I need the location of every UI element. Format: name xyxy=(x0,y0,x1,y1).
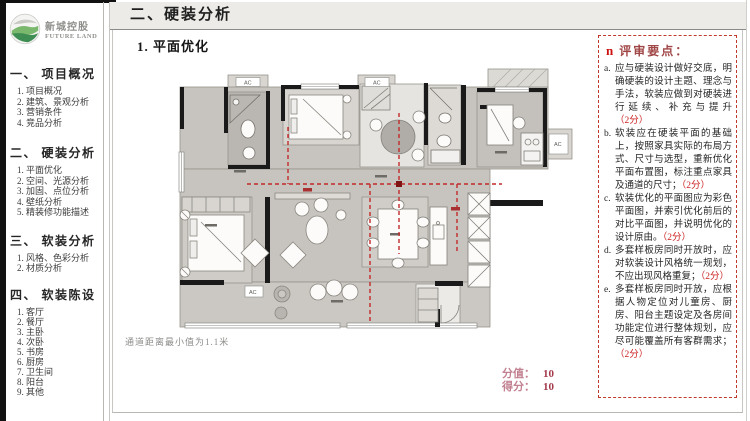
review-panel-header: n评审要点： xyxy=(606,42,732,60)
nav-item-balcony[interactable]: 8. 阳台 xyxy=(17,377,104,387)
nav-item-second-bedroom[interactable]: 4. 次卧 xyxy=(17,337,104,347)
brand-name-cn: 新城控股 xyxy=(45,18,97,33)
nav-item-marketing-conditions[interactable]: 3. 营销条件 xyxy=(17,107,104,118)
brand-name-en: FUTURE LAND xyxy=(45,33,97,40)
nav-item-living-room[interactable]: 1. 客厅 xyxy=(17,307,104,317)
review-item-text: 应与硬装设计做好交底，明 确硬装的设计主题、理念与 手法，软装应做到对硬装进 行… xyxy=(615,64,732,113)
nav-item-project-overview[interactable]: 1. 项目概况 xyxy=(17,86,104,97)
review-item-score: （2分） xyxy=(663,233,692,243)
review-item-label: b. xyxy=(604,128,615,193)
review-item-text: 软装应在硬装平面的基础上，按照家具实际的布局方式、尺寸与选型，重新优化平面布置图… xyxy=(615,129,732,191)
nav-item-study[interactable]: 5. 书房 xyxy=(17,347,104,357)
nav-item-material[interactable]: 2. 材质分析 xyxy=(17,263,104,274)
review-item-label: c. xyxy=(604,193,615,245)
globe-logo-icon xyxy=(9,13,41,45)
sidebar-divider-inner xyxy=(109,2,110,421)
nav-item-space-light[interactable]: 2. 空间、光源分析 xyxy=(17,176,104,187)
review-panel: n评审要点： a. 应与硬装设计做好交底，明 确硬装的设计主题、理念与 手法，软… xyxy=(598,35,737,398)
window-right-border xyxy=(746,0,747,421)
review-item-a: a. 应与硬装设计做好交底，明 确硬装的设计主题、理念与 手法，软装应做到对硬装… xyxy=(604,63,732,128)
title-bar: 二、硬装分析 xyxy=(110,2,746,30)
review-item-score: （2分） xyxy=(615,350,648,360)
nav-section-hard-decoration[interactable]: 二、 硬装分析 xyxy=(10,144,104,161)
review-item-score: （2分） xyxy=(682,181,711,191)
sidebar-nav: 一、 项目概况 1. 项目概况 2. 建筑、景观分析 3. 营销条件 4. 竞品… xyxy=(10,65,104,397)
section-title: 1. 平面优化 xyxy=(137,36,209,55)
nav-item-plan-optimization[interactable]: 1. 平面优化 xyxy=(17,165,104,176)
ac-label-3: AC xyxy=(554,142,562,148)
brand-logo: 新城控股 FUTURE LAND xyxy=(9,13,97,45)
got-label: 得分： xyxy=(502,381,535,393)
nav-item-competitor-analysis[interactable]: 4. 竞品分析 xyxy=(17,118,104,129)
nav-item-kitchen[interactable]: 6. 厨房 xyxy=(17,357,104,367)
sidebar-divider-outer xyxy=(103,2,104,421)
nav-item-bathroom[interactable]: 7. 卫生间 xyxy=(17,367,104,377)
review-item-d: d. 多套样板房同时开放时，应对软装设计风格统一规划，不应出现风格重复；（2分） xyxy=(604,245,732,284)
floor-plan: AC AC AC AC xyxy=(135,57,590,335)
review-item-text: 多套样板房同时开放，应根据人物定位对儿童房、厨房、阳台主题设定及各房间功能定位进… xyxy=(615,285,732,347)
score-label: 分值： xyxy=(502,368,535,380)
review-item-score: （2分） xyxy=(701,272,730,282)
nav-item-master-bedroom[interactable]: 3. 主卧 xyxy=(17,327,104,337)
review-item-e: e. 多套样板房同时开放，应根据人物定位对儿童房、厨房、阳台主题设定及各房间功能… xyxy=(604,284,732,362)
nav-section-soft-furnishing[interactable]: 四、 软装陈设 xyxy=(10,286,104,303)
sidebar: 新城控股 FUTURE LAND 一、 项目概况 1. 项目概况 2. 建筑、景… xyxy=(6,3,104,421)
got-value: 10 xyxy=(543,381,554,393)
nav-item-dining-room[interactable]: 2. 餐厅 xyxy=(17,317,104,327)
nav-item-wallpaper[interactable]: 4. 壁纸分析 xyxy=(17,197,104,208)
ac-label-4: AC xyxy=(249,290,257,296)
ac-label-1: AC xyxy=(244,81,252,87)
nav-item-architecture-landscape[interactable]: 2. 建筑、景观分析 xyxy=(17,97,104,108)
nav-item-style-color[interactable]: 1. 风格、色彩分析 xyxy=(17,253,104,264)
review-item-c: c. 软装优化的平面图应为彩色平面图，并索引优化前后的对比平面图，并说明优化的设… xyxy=(604,193,732,245)
page-title: 二、硬装分析 xyxy=(130,2,232,29)
nav-item-finishing-functions[interactable]: 5. 精装修功能描述 xyxy=(17,207,104,218)
review-item-label: d. xyxy=(604,245,615,284)
plan-caption: 通道距离最小值为1.1米 xyxy=(125,335,229,348)
bedroom2-bed-icon xyxy=(289,95,351,139)
review-item-score: （2分） xyxy=(615,116,648,126)
score-value: 10 xyxy=(543,368,554,380)
square-bullet-icon: n xyxy=(606,43,613,58)
review-item-label: a. xyxy=(604,63,615,128)
review-item-b: b. 软装应在硬装平面的基础上，按照家具实际的布局方式、尺寸与选型，重新优化平面… xyxy=(604,128,732,193)
nav-section-soft-decoration[interactable]: 三、 软装分析 xyxy=(10,232,104,249)
nav-item-other[interactable]: 9. 其他 xyxy=(17,387,104,397)
review-item-label: e. xyxy=(604,284,615,362)
review-panel-title: 评审要点： xyxy=(619,44,689,58)
score-block: 分值：10 得分：10 xyxy=(502,368,554,394)
nav-section-project-overview[interactable]: 一、 项目概况 xyxy=(10,65,104,82)
nav-item-reinforce-points[interactable]: 3. 加固、点位分析 xyxy=(17,186,104,197)
ac-label-2: AC xyxy=(373,81,381,87)
